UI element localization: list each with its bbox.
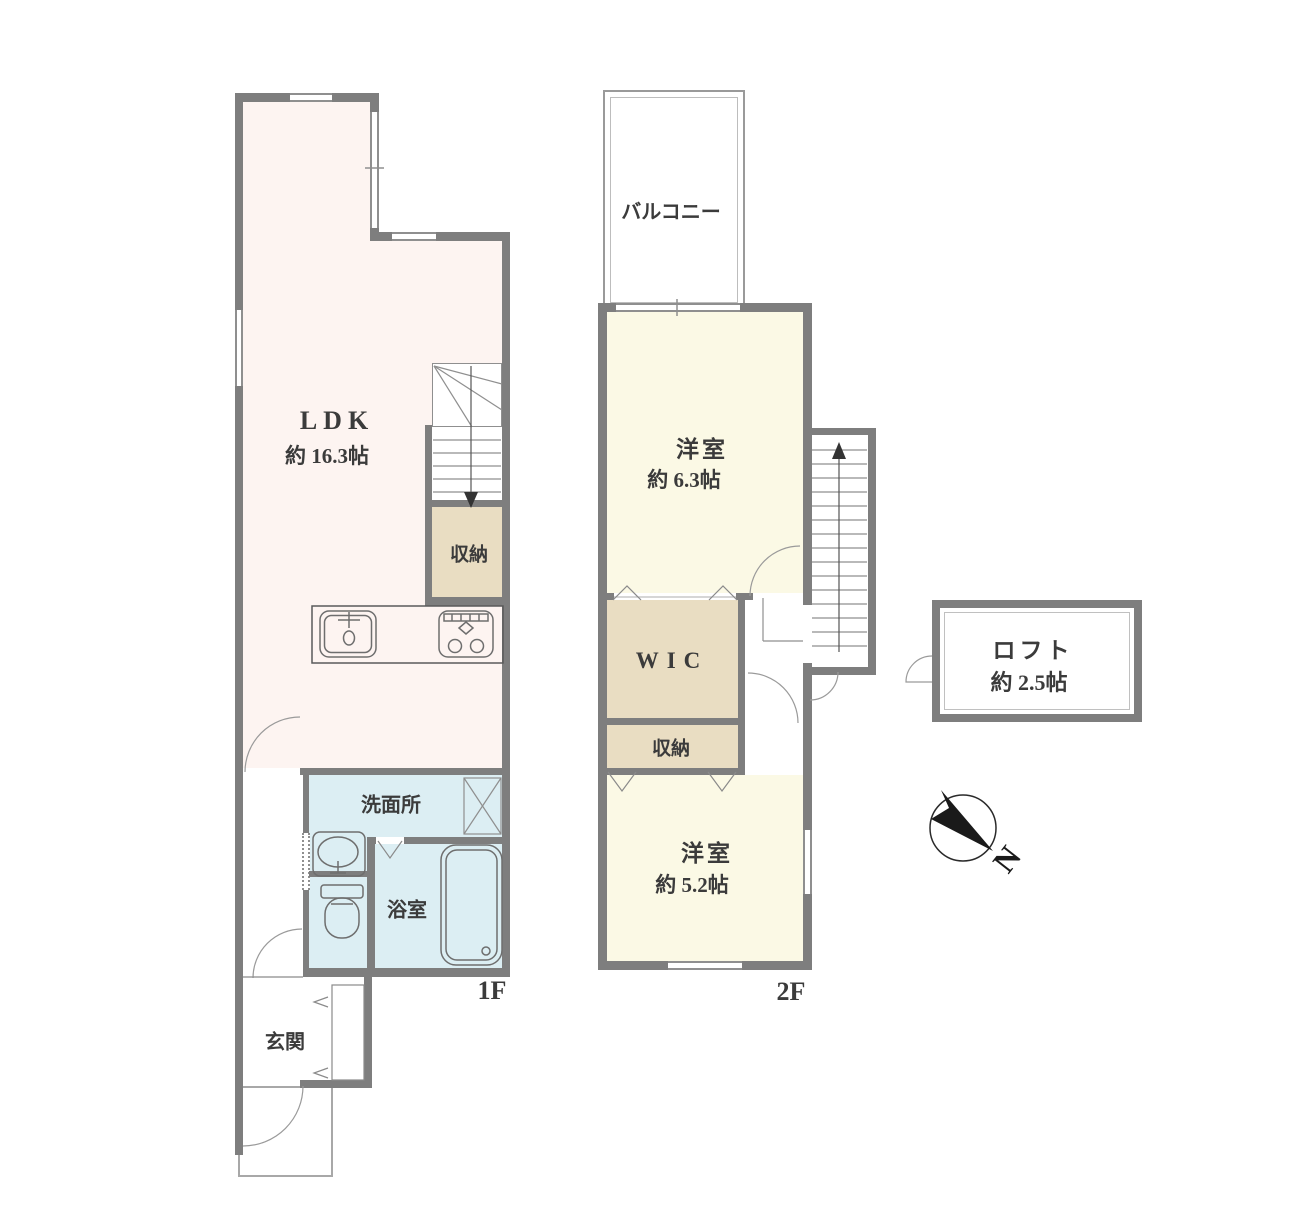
compass-icon: N <box>930 790 1028 879</box>
wic-door-mark <box>613 586 641 600</box>
stair-door-arc <box>810 672 838 700</box>
storage2f-door-mark <box>708 772 736 791</box>
window-ticks <box>365 168 677 316</box>
stairs-1f-down <box>433 366 502 508</box>
wic-door-mark <box>709 586 737 600</box>
bedroom1-door-arc <box>750 546 800 596</box>
entrance-door-arc <box>243 1086 303 1146</box>
washer-pan-icon <box>464 778 501 834</box>
toilet-door-arc <box>253 929 302 978</box>
ldk-hall-door-arc <box>245 717 300 772</box>
stove-icon <box>439 611 493 657</box>
fixtures-overlay: N <box>0 0 1300 1223</box>
floorplan-canvas: LDK 約 16.3帖 収納 洗面所 浴室 玄関 1F <box>0 0 1300 1223</box>
toilet-icon <box>321 885 363 938</box>
shoe-cabinet <box>243 977 364 1080</box>
stairs-2f-up <box>763 442 867 652</box>
washbasin-icon <box>313 832 365 876</box>
loft-access-arc <box>906 656 932 682</box>
storage2f-door-mark <box>608 772 636 791</box>
bedroom2-door-arc <box>748 673 798 723</box>
bath-door-mark <box>378 841 402 858</box>
bathtub-icon <box>441 845 502 965</box>
kitchen-sink-icon <box>320 611 376 657</box>
folding-door-marks <box>378 586 737 858</box>
